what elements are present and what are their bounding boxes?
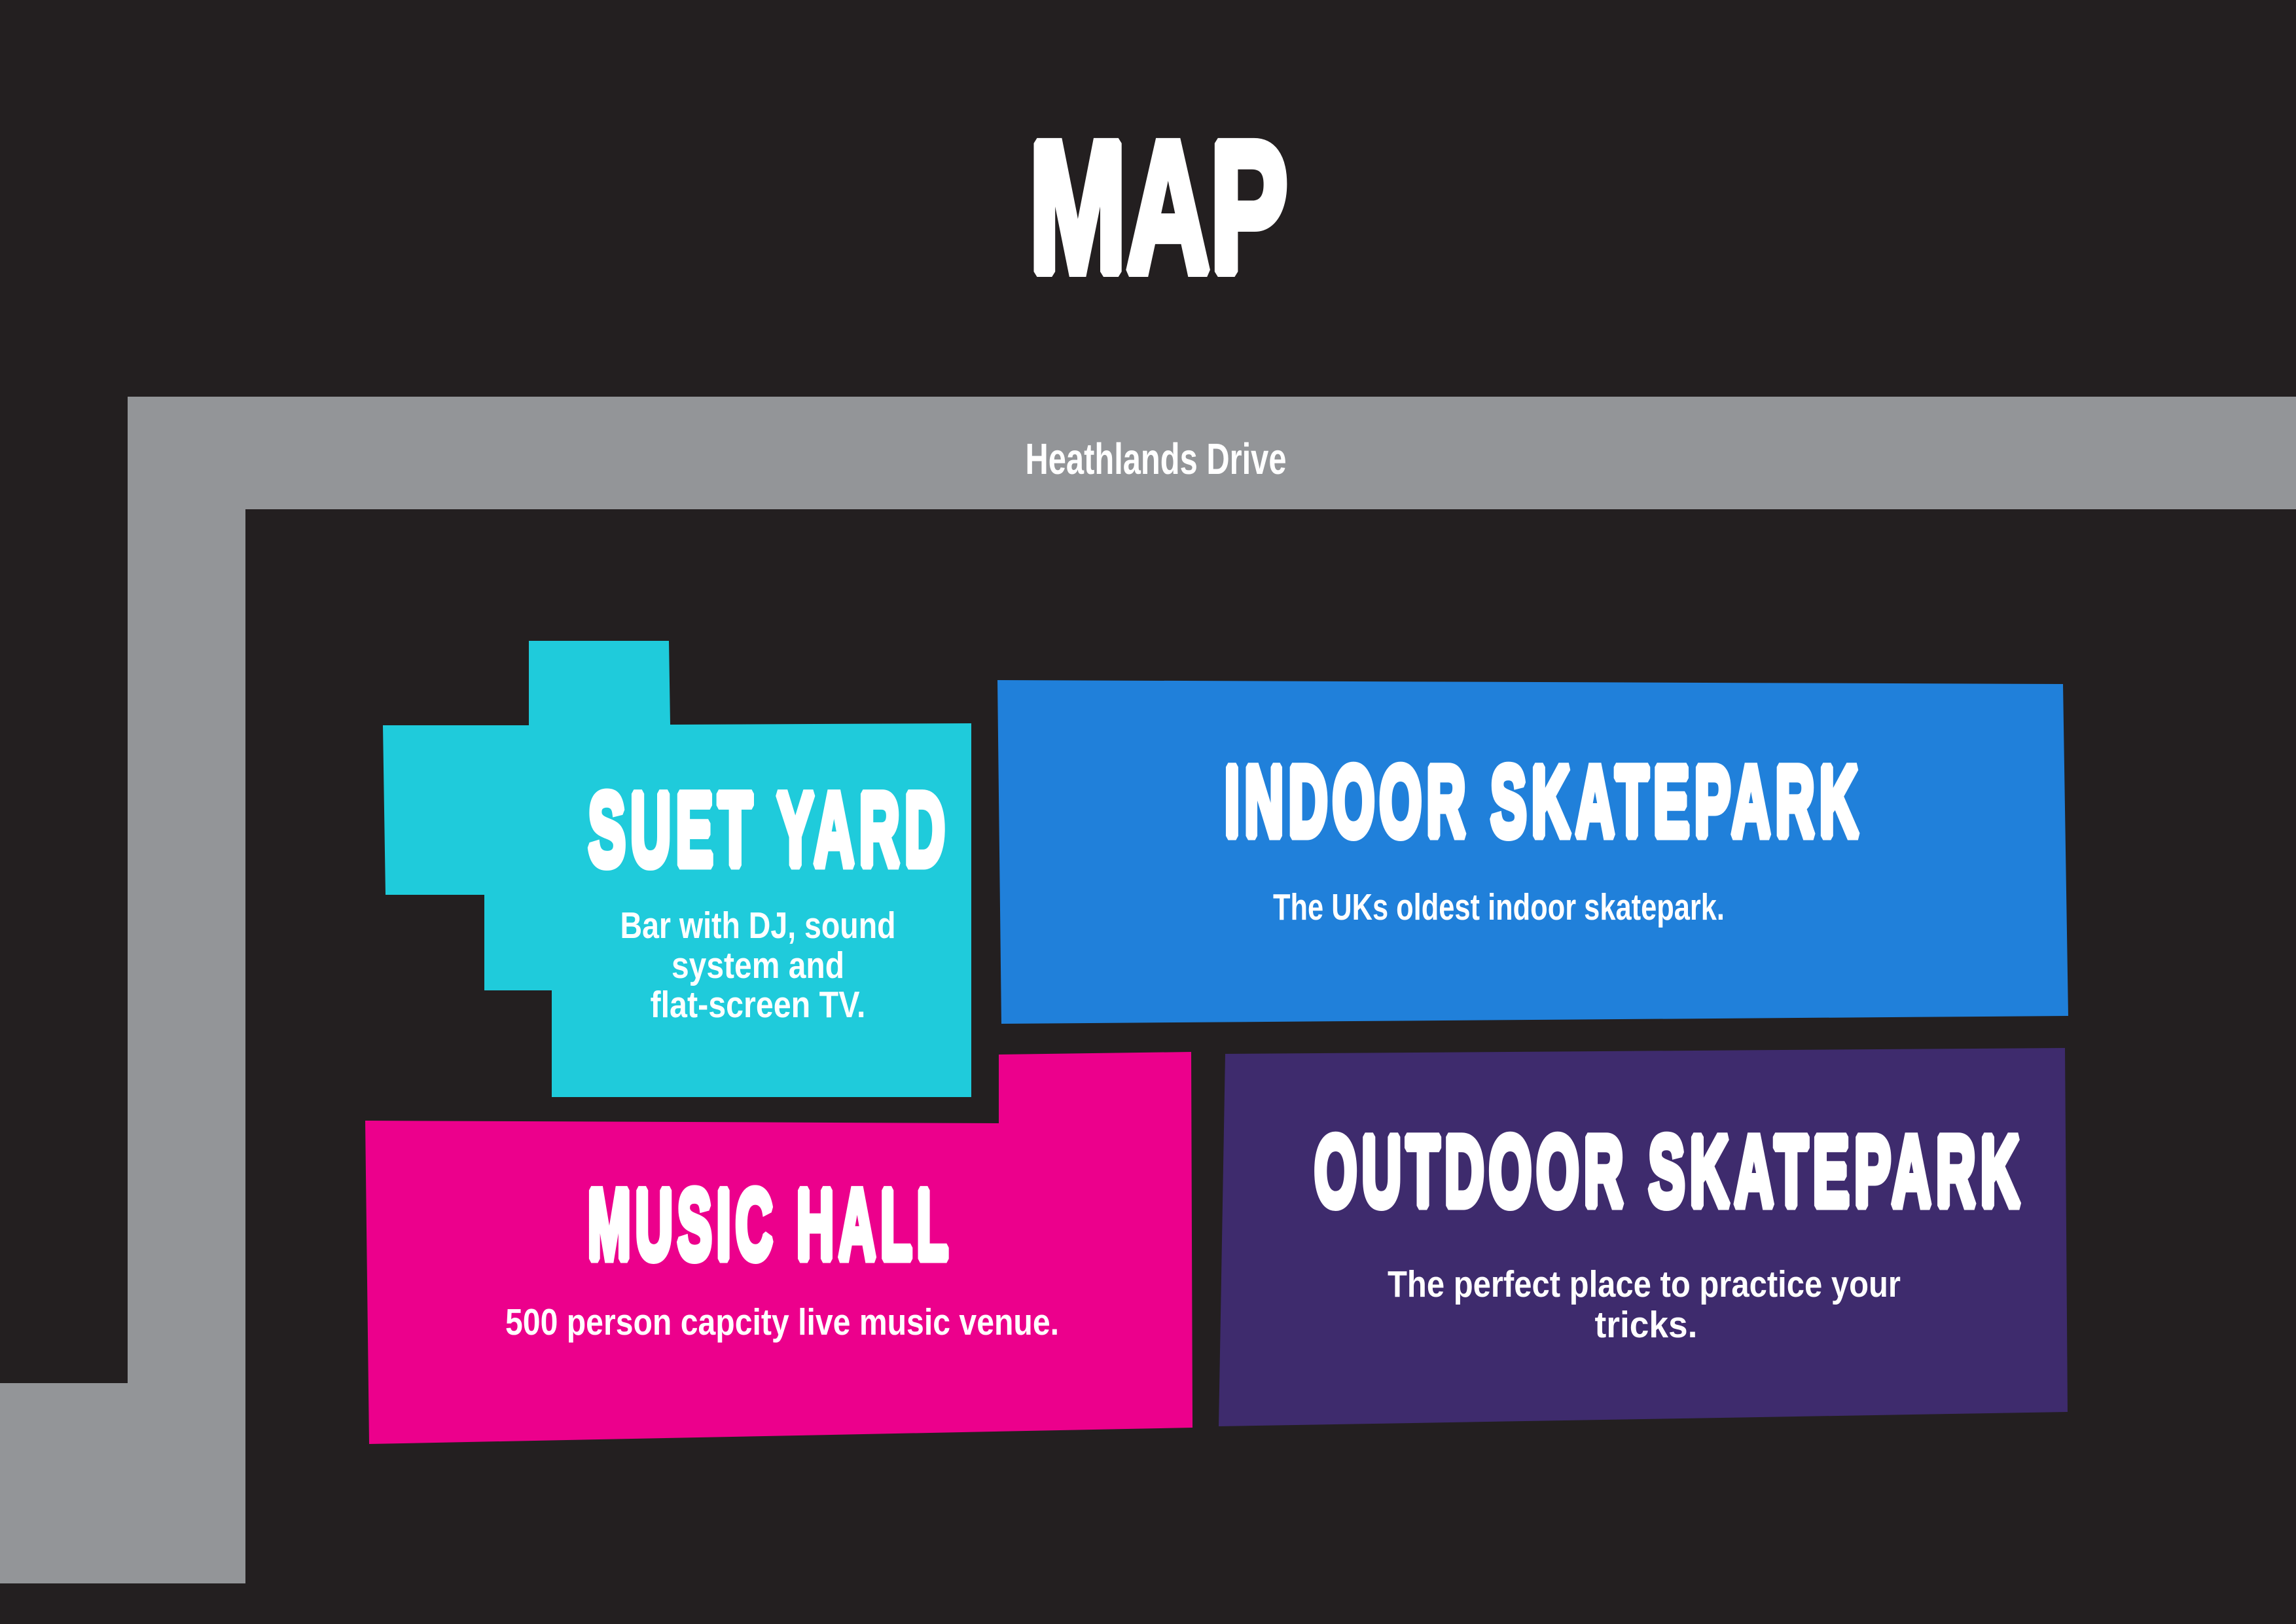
svg-text:SUET YARD: SUET YARD — [588, 772, 950, 888]
svg-text:Heathlands Drive: Heathlands Drive — [1026, 435, 1287, 484]
svg-text:MUSIC HALL: MUSIC HALL — [588, 1168, 953, 1280]
svg-text:flat-screen TV.: flat-screen TV. — [651, 984, 866, 1026]
svg-text:Bar with DJ, sound: Bar with DJ, sound — [620, 905, 896, 947]
svg-text:tricks.: tricks. — [1595, 1304, 1698, 1346]
svg-text:500 person capcity live music: 500 person capcity live music venue. — [505, 1301, 1059, 1343]
svg-text:MAP: MAP — [1030, 103, 1288, 312]
svg-text:system and: system and — [672, 945, 844, 986]
svg-text:The perfect place to practice: The perfect place to practice your — [1388, 1263, 1901, 1305]
svg-text:The UKs oldest indoor skatepar: The UKs oldest indoor skatepark. — [1273, 886, 1725, 928]
svg-text:INDOOR SKATEPARK: INDOOR SKATEPARK — [1225, 746, 1863, 857]
svg-text:OUTDOOR SKATEPARK: OUTDOOR SKATEPARK — [1314, 1115, 2024, 1227]
